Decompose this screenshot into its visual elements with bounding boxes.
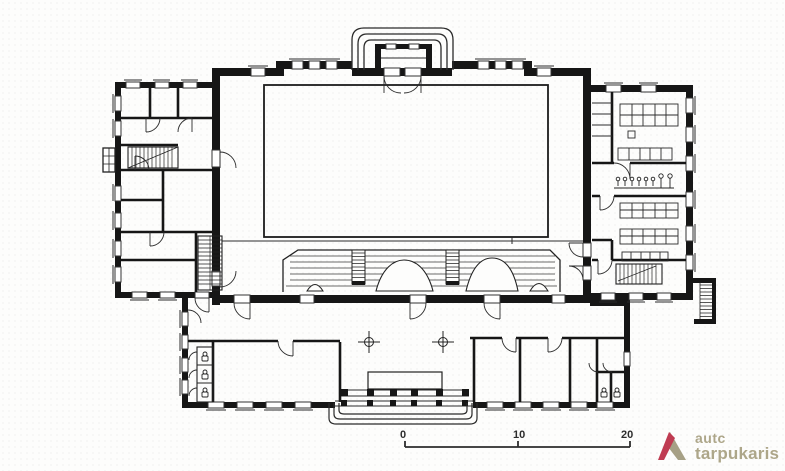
logo-text-line2: tarpukaris — [695, 444, 779, 463]
portico — [329, 372, 477, 424]
hall-inner-court — [264, 85, 548, 237]
right-wing-stair — [616, 264, 662, 284]
closet-shelves — [592, 103, 612, 136]
tribune-stair — [352, 250, 365, 285]
scale-label-10: 10 — [513, 429, 525, 441]
tribune — [283, 250, 560, 292]
autc-logo: autc tarpukaris — [658, 430, 779, 463]
portico-columns — [341, 389, 469, 406]
floor-plan-drawing: 0 10 20 autc tarpukaris — [0, 0, 785, 471]
vestibule-columns — [358, 331, 454, 353]
left-wing-stair-upper — [128, 147, 178, 168]
scale-line — [405, 441, 630, 447]
toilet-stalls — [197, 347, 620, 402]
tribune-curve — [466, 258, 518, 291]
exterior-stair — [700, 282, 712, 319]
tribune-curve — [376, 260, 433, 291]
scanned-floor-plan-page: 0 10 20 autc tarpukaris — [0, 0, 785, 471]
scale-label-0: 0 — [400, 429, 406, 441]
scale-label-20: 20 — [621, 429, 633, 441]
scale-bar: 0 10 20 — [400, 429, 633, 447]
classroom-desks — [618, 104, 678, 261]
tribune-stair — [446, 250, 459, 285]
side-bay — [103, 148, 115, 172]
window-sills — [113, 59, 695, 410]
coat-hooks — [614, 174, 674, 188]
window-openings — [115, 44, 693, 408]
central-hall — [222, 85, 583, 292]
interior-walls — [121, 88, 686, 402]
